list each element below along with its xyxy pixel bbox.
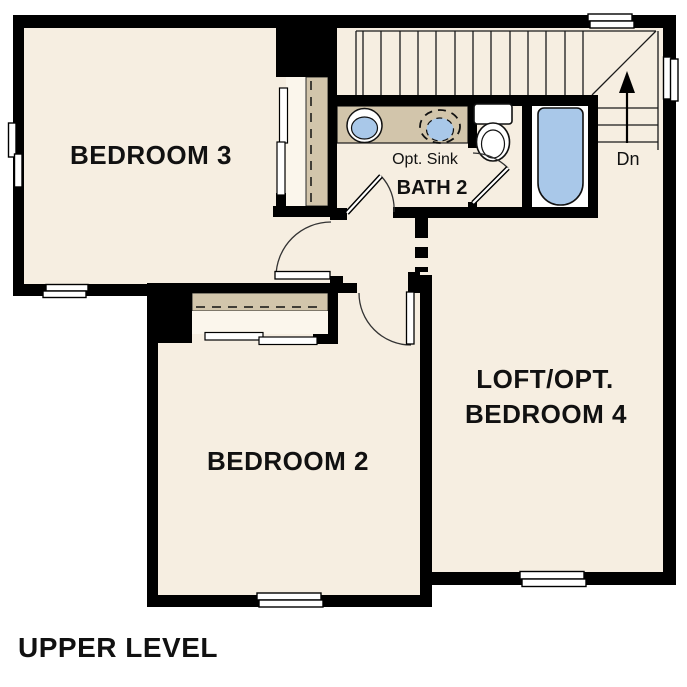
window [15,154,23,187]
bedroom-2-closet-shelf [192,293,328,311]
window [43,291,86,298]
loft-label-line2: BEDROOM 4 [465,399,627,429]
opt-sink-label: Opt. Sink [392,151,459,168]
wall-top [13,15,675,28]
closet-bypass-door [280,88,288,143]
optional-sink-basin [427,118,454,141]
wall-bedroom2-top [147,283,357,293]
window [522,579,586,587]
window [520,572,584,580]
bedroom-2-closet-interior [192,311,328,334]
bedroom-2-label: BEDROOM 2 [207,446,369,476]
wall-closet3-bottom [273,206,337,217]
bedroom-3-closet-interior [286,77,307,206]
wall-tub-stairs-divider [588,95,598,208]
wall-bath-door-stub [330,208,347,220]
window [590,21,634,28]
wall-chase-block [276,15,337,77]
floor-plan: BEDROOM 3 Opt. Sink BATH 2 Dn BEDROOM 2 … [0,0,687,687]
wall-toilet-door-stub [468,202,477,218]
wall-bedroom2-west [147,284,158,607]
closet-slider-door [259,337,317,345]
bedroom-3-label: BEDROOM 3 [70,140,232,170]
wall-hall-corner [408,272,420,293]
floor-plan-drawing: BEDROOM 3 Opt. Sink BATH 2 Dn BEDROOM 2 … [0,0,687,687]
wall-bedroom2-east [420,275,432,607]
bathtub-icon [538,108,583,205]
closet-bypass-door [277,142,285,195]
bedroom-3-closet-shelf [306,77,328,206]
window [588,14,632,21]
window [259,600,323,607]
wall-bath-bottom [393,207,598,218]
bath-2-label: BATH 2 [397,177,468,199]
window [46,285,88,292]
page-title: UPPER LEVEL [18,632,218,663]
loft-label-line1: LOFT/OPT. [476,364,613,394]
sink-basin [352,117,378,139]
door-leaf [275,272,330,280]
wall-toilet-tub-divider [522,103,532,208]
wall-below-stairs [330,95,598,106]
window [257,593,321,600]
door-leaf [407,292,415,344]
wall-closet3-right [328,15,337,213]
wall-bedroom2-nw-block [157,293,192,343]
wall-opening-top-stub [415,218,428,227]
window [671,59,679,101]
toilet-tank [474,104,512,124]
closet-slider-door [205,333,263,341]
window [9,123,17,157]
stairs-down-label: Dn [616,149,639,169]
